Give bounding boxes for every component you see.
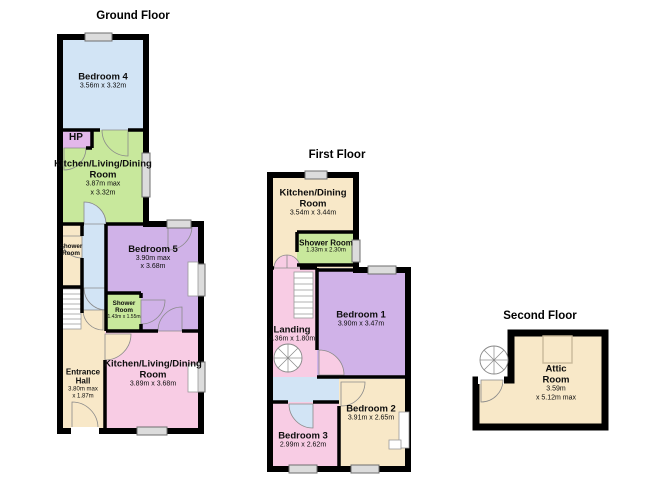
gf-staircase [61,289,81,329]
label-kitchen-living-dining-gf: Kitchen/Living/Dining Room 3.87m max x 3… [47,159,159,198]
label-bedroom-5: Bedroom 5 3.90m max x 3.68m [113,244,193,272]
label-bedroom-3: Bedroom 3 2.99m x 2.62m [258,430,348,449]
title-second-floor: Second Floor [503,310,576,322]
ff-spiral-staircase [274,344,302,372]
label-kitchen-living-dining-pink: Kitchen/Living/Dining Room 3.89m x 3.68m [93,359,213,390]
label-kitchen-dining-ff: Kitchen/Dining Room 3.54m x 3.44m [265,188,361,219]
label-bedroom-2: Bedroom 2 3.91m x 2.65m [326,403,416,422]
floorplan: Ground Floor First Floor Second Floor Be… [0,0,668,486]
label-attic-room: Attic Room 3.59m x 5.12m max [532,364,580,403]
label-bedroom-4: Bedroom 4 3.56m x 3.32m [58,71,148,90]
title-ground-floor: Ground Floor [96,10,169,22]
ff-corridor [270,377,339,402]
label-shower-ff: Shower Room 1.33m x 2.30m [298,239,354,256]
ff-staircase [294,272,313,318]
gf-front-door-opening [71,427,99,435]
label-landing: Landing 4.36m x 1.80m [247,324,337,343]
sf-spiral-staircase [480,346,508,374]
title-first-floor: First Floor [309,149,366,161]
label-hp: HP [62,132,90,144]
label-shower-small: Shower Room 1.43m x 1.55m [106,301,142,321]
label-shower-left: Shower Room [58,244,84,258]
